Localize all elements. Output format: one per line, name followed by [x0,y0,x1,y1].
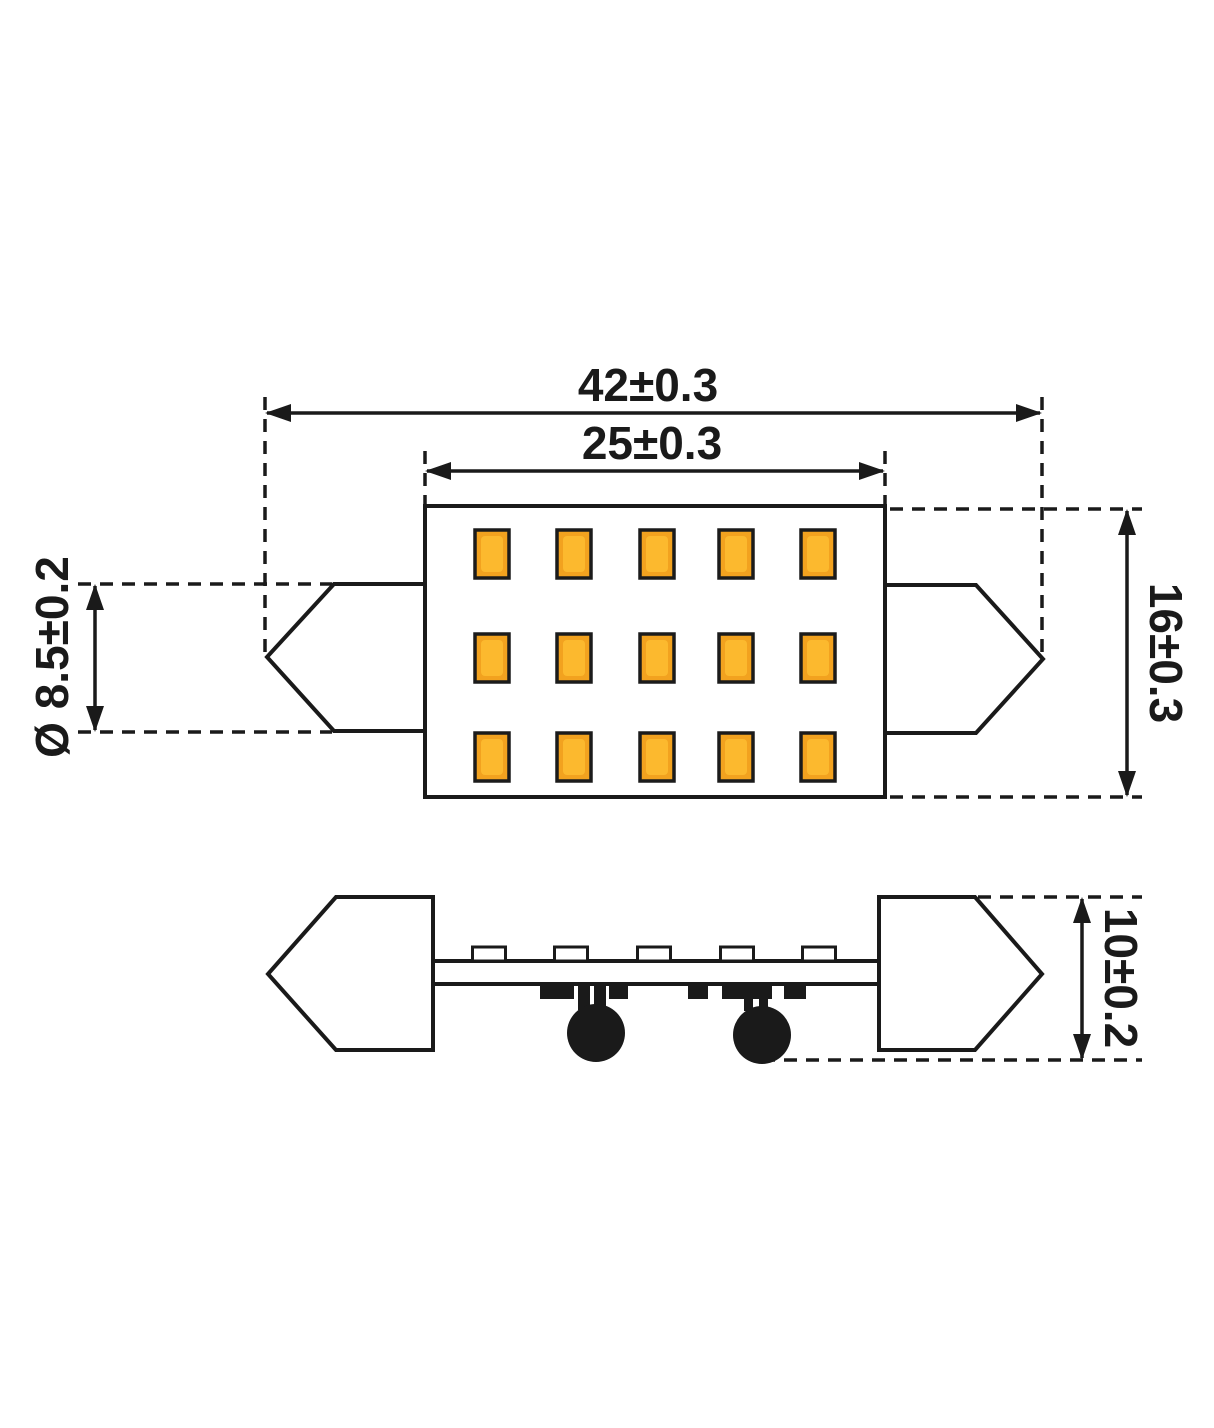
led-chip-emitter [563,640,585,676]
led-chip-emitter [725,739,747,775]
arrowhead-bottom [1118,771,1136,797]
arrowhead-top [1118,509,1136,535]
led-chip-emitter [563,739,585,775]
led-chip-emitter [725,640,747,676]
smd-component [609,986,628,999]
led-profile-row [473,947,836,961]
technical-drawing-page: 42±0.3 25±0.3 Ø 8.5±0.2 [0,0,1214,1423]
led-chip-emitter [725,536,747,572]
capacitor-body [733,1006,791,1064]
dimension-body-length-label: 25±0.3 [582,417,722,469]
arrowhead-bottom [1073,1034,1091,1060]
arrowhead-right [859,462,885,480]
right-end-cap-top-view [885,585,1043,733]
dimension-overall-length: 42±0.3 [265,359,1042,422]
led-chip-profile [803,947,836,961]
right-end-cap-side-view [879,897,1042,1050]
led-chip-emitter [807,739,829,775]
led-chip-profile [555,947,588,961]
smd-component [722,986,772,999]
arrowhead-left [425,462,451,480]
smd-component [784,986,806,999]
smd-component [540,986,574,999]
capacitor-2 [733,998,791,1064]
capacitor-body [567,1004,625,1062]
led-chip-emitter [807,536,829,572]
led-chip-profile [721,947,754,961]
festoon-bulb-dimension-drawing: 42±0.3 25±0.3 Ø 8.5±0.2 [0,0,1214,1423]
dimension-body-length: 25±0.3 [425,417,885,480]
smd-component [688,986,708,999]
led-chip-emitter [563,536,585,572]
led-chip-emitter [481,640,503,676]
led-chip-profile [473,947,506,961]
led-chip-emitter [481,536,503,572]
left-end-cap-side-view [268,897,433,1050]
dimension-overall-length-label: 42±0.3 [578,359,718,411]
led-chip-profile [638,947,671,961]
arrowhead-right [1016,404,1042,422]
led-chip-emitter [646,536,668,572]
led-chip-emitter [481,739,503,775]
top-view: 42±0.3 25±0.3 Ø 8.5±0.2 [26,359,1192,797]
led-chip-emitter [646,739,668,775]
dimension-tip-diameter: Ø 8.5±0.2 [26,556,104,758]
dimension-side-height: 10±0.2 [1073,897,1147,1060]
arrowhead-bottom [86,706,104,732]
left-end-cap-top-view [267,584,425,731]
dimension-tip-diameter-label: Ø 8.5±0.2 [26,556,78,758]
dimension-body-height-label: 16±0.3 [1140,583,1192,723]
arrowhead-top [1073,897,1091,923]
dimension-body-height: 16±0.3 [1118,509,1192,797]
side-view: 10±0.2 [268,897,1147,1064]
arrowhead-left [265,404,291,422]
arrowhead-top [86,584,104,610]
led-chip-emitter [646,640,668,676]
led-chip-emitter [807,640,829,676]
dimension-side-height-label: 10±0.2 [1095,908,1147,1048]
